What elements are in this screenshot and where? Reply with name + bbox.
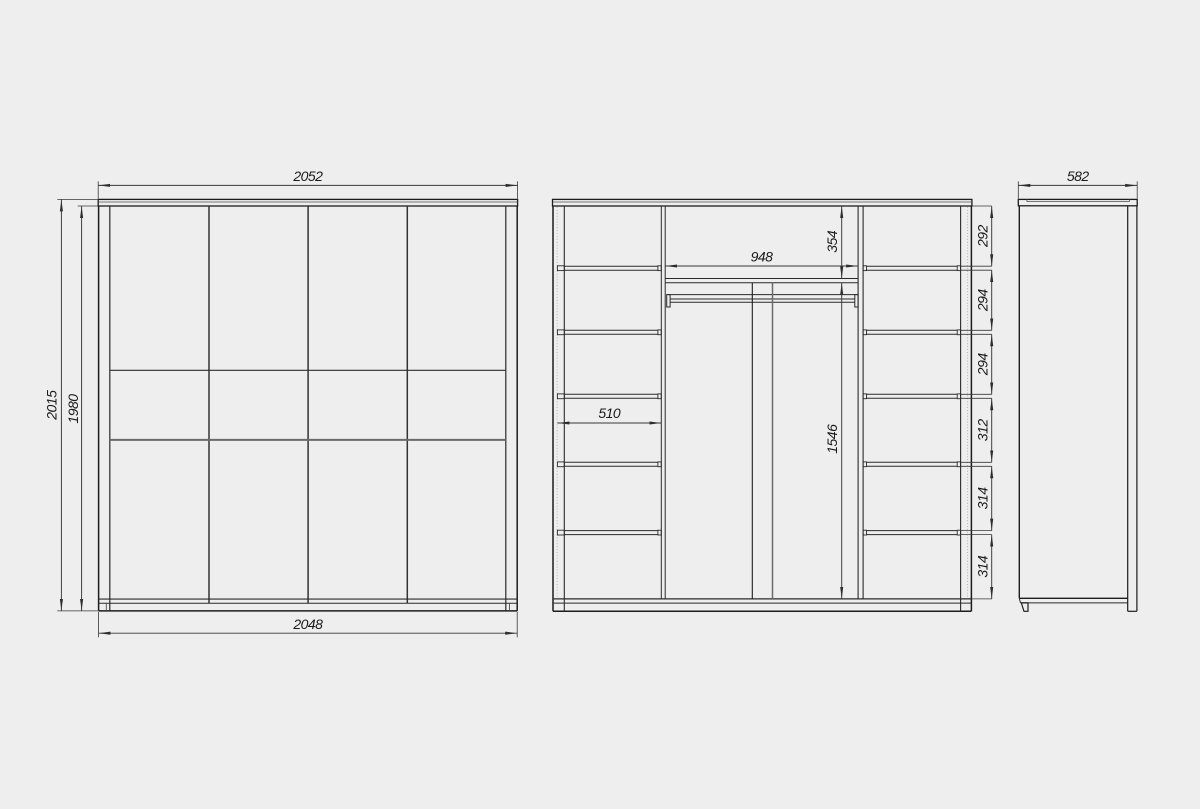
svg-text:2015: 2015 [44, 390, 60, 421]
svg-text:314: 314 [974, 487, 990, 510]
svg-text:2052: 2052 [292, 168, 323, 184]
svg-text:294: 294 [974, 353, 990, 377]
svg-text:2048: 2048 [292, 616, 323, 632]
svg-text:1980: 1980 [65, 394, 81, 424]
svg-text:510: 510 [598, 405, 621, 421]
svg-text:948: 948 [751, 248, 774, 264]
svg-text:354: 354 [824, 230, 840, 253]
svg-text:294: 294 [974, 289, 990, 313]
svg-text:1546: 1546 [824, 424, 840, 454]
svg-text:582: 582 [1067, 168, 1090, 184]
svg-text:314: 314 [974, 555, 990, 578]
svg-text:292: 292 [974, 224, 990, 248]
svg-text:312: 312 [974, 419, 990, 442]
